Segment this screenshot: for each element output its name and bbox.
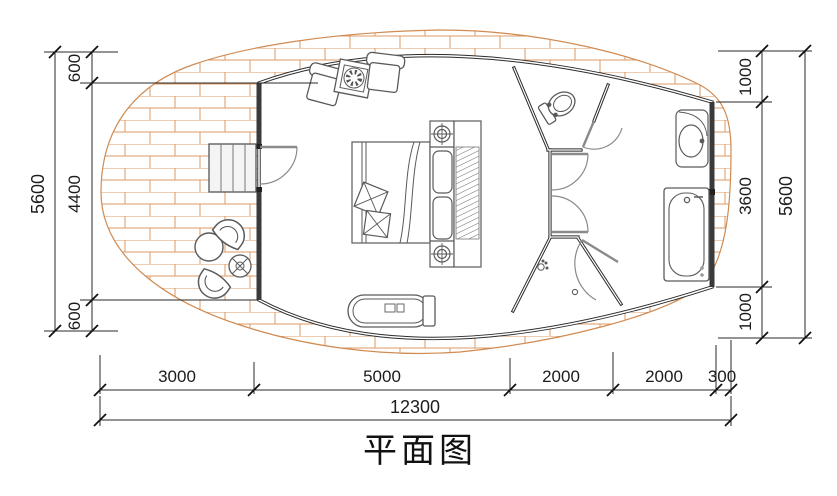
dim-label-right-seg-1: 3600 — [736, 177, 755, 215]
dim-label-bottom-seg-3: 2000 — [645, 367, 683, 386]
bed-pillow — [433, 197, 452, 239]
chaise-lounge — [348, 295, 435, 327]
bed-pillow-decor — [363, 210, 390, 237]
wall-joint-icon — [709, 189, 715, 195]
floor-plan-sheet: 5600 600 4400 600 1000 3600 1000 5600 30… — [0, 0, 837, 496]
wall-joint-icon — [256, 187, 262, 192]
sink-faucet — [700, 139, 704, 143]
dim-label-left-seg-2: 600 — [65, 302, 84, 330]
dim-label-bottom-seg-0: 3000 — [158, 367, 196, 386]
dim-label-bottom-total: 12300 — [390, 397, 440, 417]
dim-label-bottom-seg-4: 300 — [708, 367, 736, 386]
dim-label-right-total: 5600 — [776, 176, 796, 216]
dim-label-left-total: 5600 — [28, 174, 48, 214]
dim-label-right-seg-2: 1000 — [736, 293, 755, 331]
sink-vanity — [676, 110, 708, 167]
extension-lines-right — [716, 51, 812, 338]
dim-label-right-seg-0: 1000 — [736, 58, 755, 96]
chaise-side-table — [423, 296, 435, 326]
wardrobe-clothes-hatch — [456, 147, 479, 239]
double-bed — [352, 142, 430, 243]
dim-label-left-seg-1: 4400 — [65, 175, 84, 213]
bathtub — [664, 188, 709, 281]
dim-label-bottom-seg-1: 5000 — [363, 367, 401, 386]
deck-side-table — [229, 255, 251, 277]
dim-label-bottom-seg-2: 2000 — [542, 367, 580, 386]
headboard-nightstands — [430, 121, 454, 267]
dim-label-left-seg-0: 600 — [65, 54, 84, 82]
wardrobe — [454, 121, 481, 267]
floor-plan-drawing: 5600 600 4400 600 1000 3600 1000 5600 30… — [0, 0, 837, 496]
drawing-title: 平面图 — [363, 432, 477, 470]
bed-pillow — [433, 151, 452, 193]
entry-steps — [209, 144, 256, 192]
